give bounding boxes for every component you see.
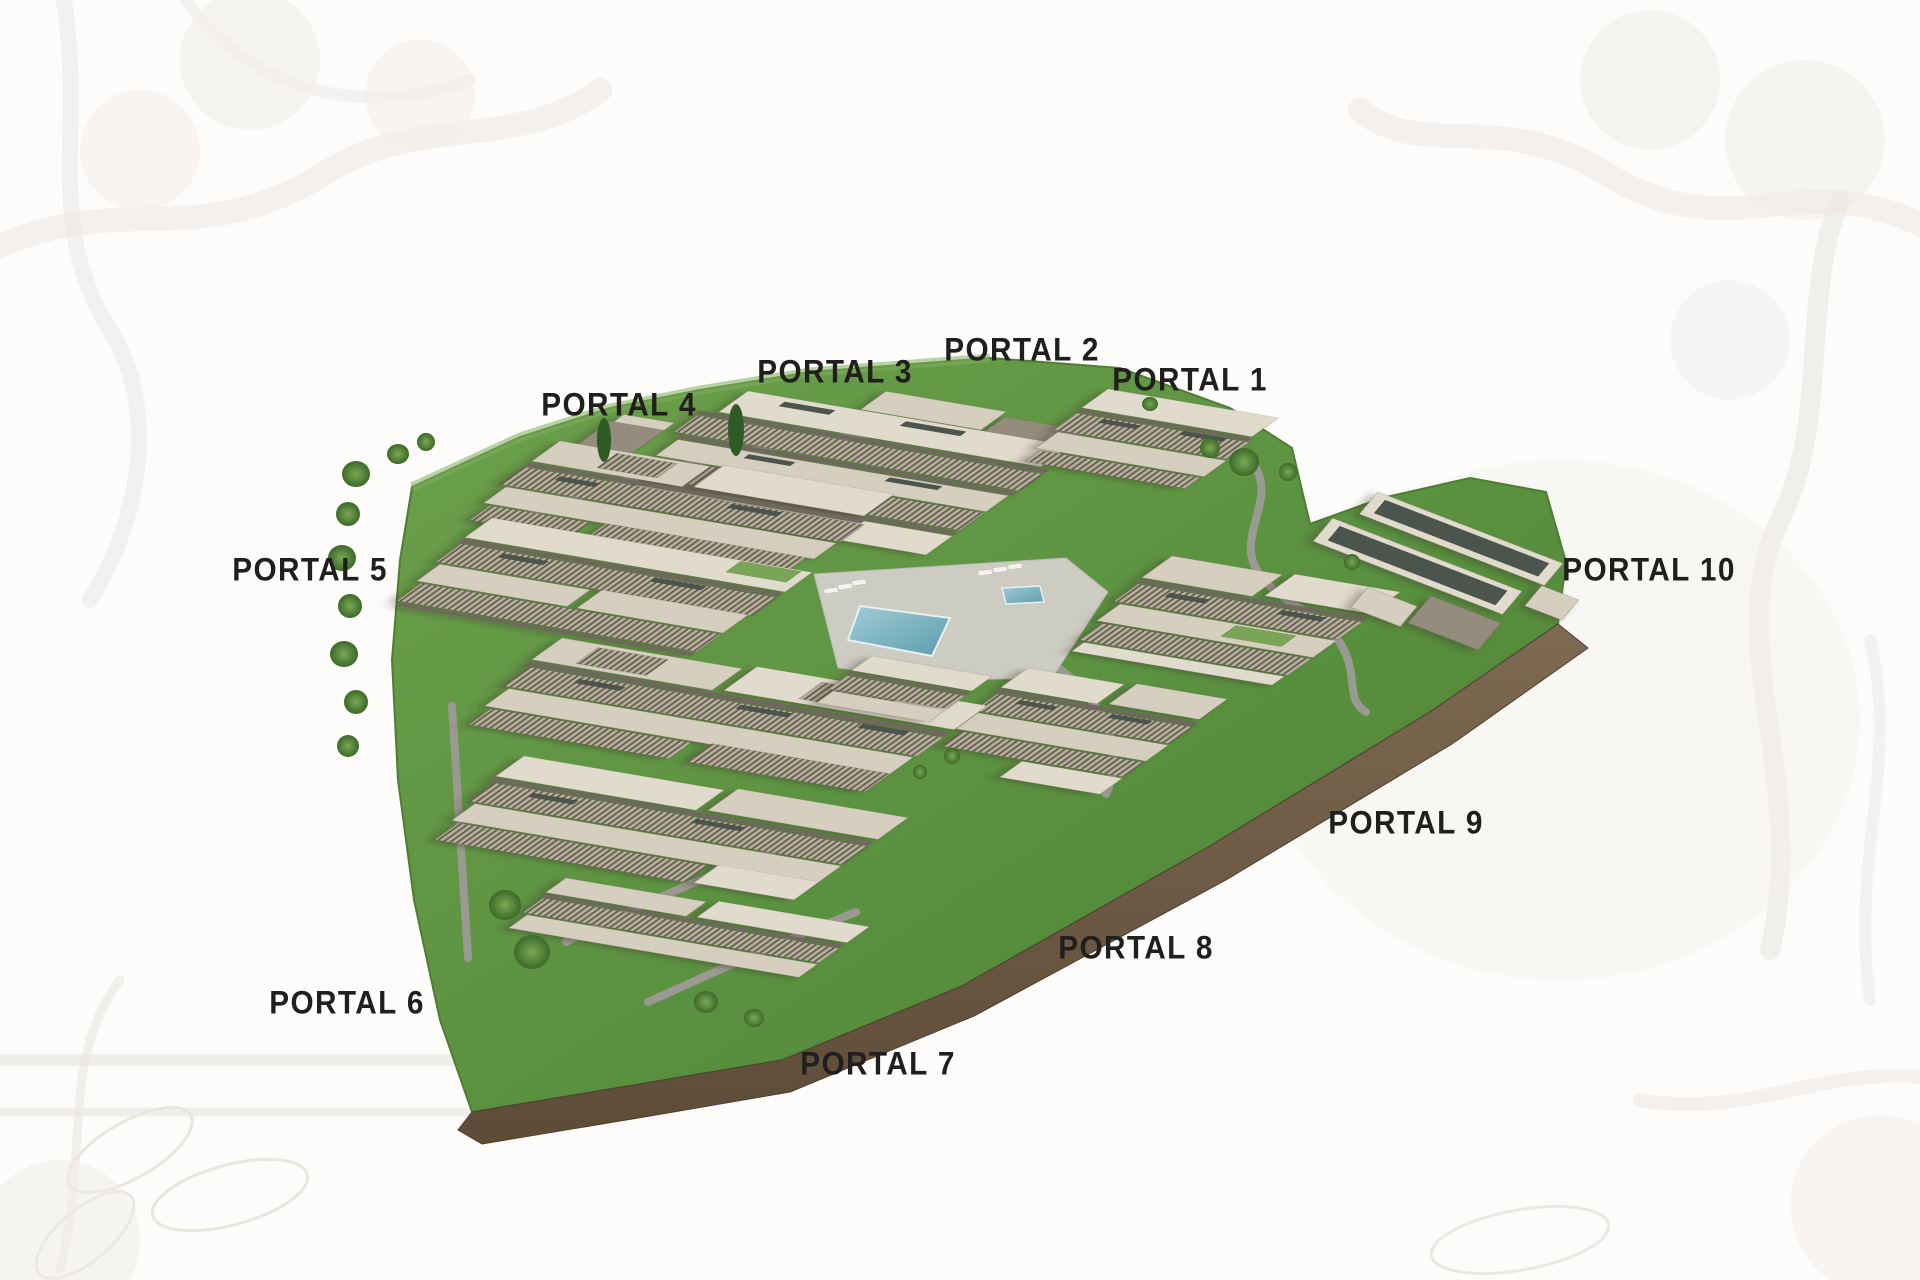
tree xyxy=(342,461,370,487)
portal-8-label: PORTAL 8 xyxy=(1058,930,1214,967)
portal-2-label: PORTAL 2 xyxy=(944,332,1100,369)
tree xyxy=(330,641,358,667)
tree xyxy=(336,502,360,526)
tree xyxy=(514,935,550,969)
tree xyxy=(417,433,435,451)
tree xyxy=(913,765,927,779)
portal-9-label: PORTAL 9 xyxy=(1328,805,1484,842)
tree xyxy=(337,735,359,757)
tree xyxy=(1229,448,1259,476)
tree xyxy=(1200,438,1220,458)
portal-7-label: PORTAL 7 xyxy=(800,1046,956,1083)
portal-10-label: PORTAL 10 xyxy=(1562,552,1736,589)
masterplan-render: .r1{fill:#d6cfbf;stroke:#9a927f;stroke-w… xyxy=(0,0,1920,1280)
tree xyxy=(1344,554,1360,570)
portal-3-label: PORTAL 3 xyxy=(757,354,913,391)
background-art-top-right xyxy=(1260,10,1920,1000)
tree xyxy=(387,444,409,464)
tree xyxy=(489,890,521,920)
tree xyxy=(1142,397,1158,411)
tree xyxy=(1279,463,1297,481)
portal-4-label: PORTAL 4 xyxy=(541,387,697,424)
kids-pool xyxy=(1002,586,1044,604)
conifer-tree xyxy=(597,418,611,462)
masterplan-figure: .r1{fill:#d6cfbf;stroke:#9a927f;stroke-w… xyxy=(0,0,1920,1280)
tree xyxy=(344,690,368,714)
tree xyxy=(338,594,362,618)
portal-5-label: PORTAL 5 xyxy=(232,552,388,589)
tree xyxy=(694,991,718,1013)
tree xyxy=(944,748,960,764)
portal-6-label: PORTAL 6 xyxy=(269,985,425,1022)
conifer-tree xyxy=(728,404,744,456)
portal-1-label: PORTAL 1 xyxy=(1112,362,1268,399)
background-art-bottom-right xyxy=(1426,1076,1920,1280)
tree xyxy=(744,1009,764,1027)
